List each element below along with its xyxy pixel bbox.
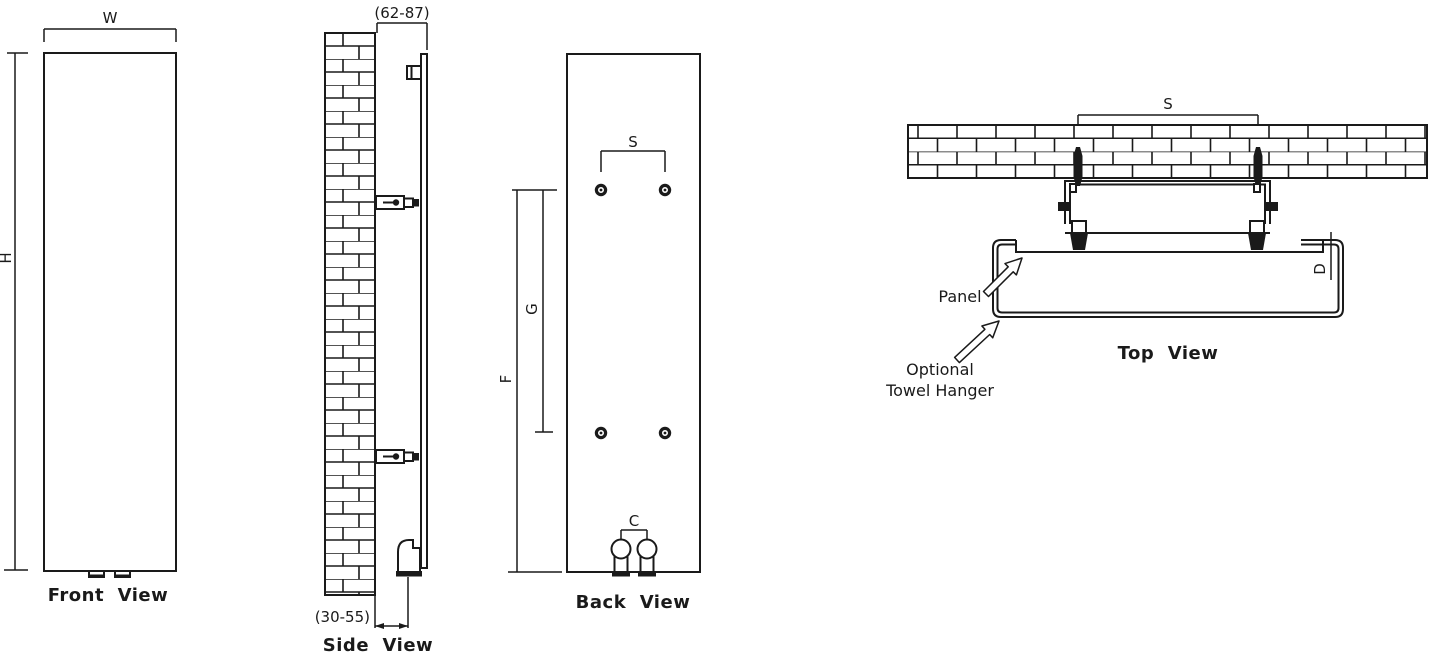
canvas-background	[0, 0, 1445, 667]
side-panel-outline	[421, 54, 427, 568]
back-upper-span-label: G	[523, 303, 541, 315]
back-full-span-label: F	[497, 375, 515, 384]
technical-drawing-page: W H Front View	[0, 0, 1445, 667]
towel-hanger-callout-line1: Optional	[906, 360, 974, 379]
front-width-dim-label: W	[103, 9, 118, 27]
top-depth-label: D	[1311, 263, 1329, 275]
back-panel-outline	[567, 54, 700, 572]
side-top-clip	[407, 66, 421, 79]
radiator-installation-diagram: W H Front View	[0, 0, 1445, 667]
back-view-title: Back View	[576, 592, 691, 613]
front-view-title: Front View	[48, 585, 168, 606]
side-bottom-range-label: (30-55)	[315, 608, 370, 626]
back-pipe-spacing-label: C	[629, 512, 639, 530]
side-view-title: Side View	[323, 635, 433, 656]
towel-hanger-callout-line2: Towel Hanger	[885, 381, 994, 400]
front-height-dim-label: H	[0, 252, 15, 263]
panel-callout-label: Panel	[938, 287, 981, 306]
top-wall-bricks	[908, 125, 1427, 178]
back-hole-spacing-label: S	[628, 133, 638, 151]
top-view-title: Top View	[1118, 343, 1219, 364]
front-panel-outline	[44, 53, 176, 571]
side-top-range-label: (62-87)	[374, 4, 429, 22]
side-wall-bricks	[325, 33, 375, 595]
side-upper-bracket	[376, 196, 419, 209]
top-anchor-spacing-label: S	[1163, 95, 1173, 113]
side-lower-bracket	[376, 450, 419, 463]
